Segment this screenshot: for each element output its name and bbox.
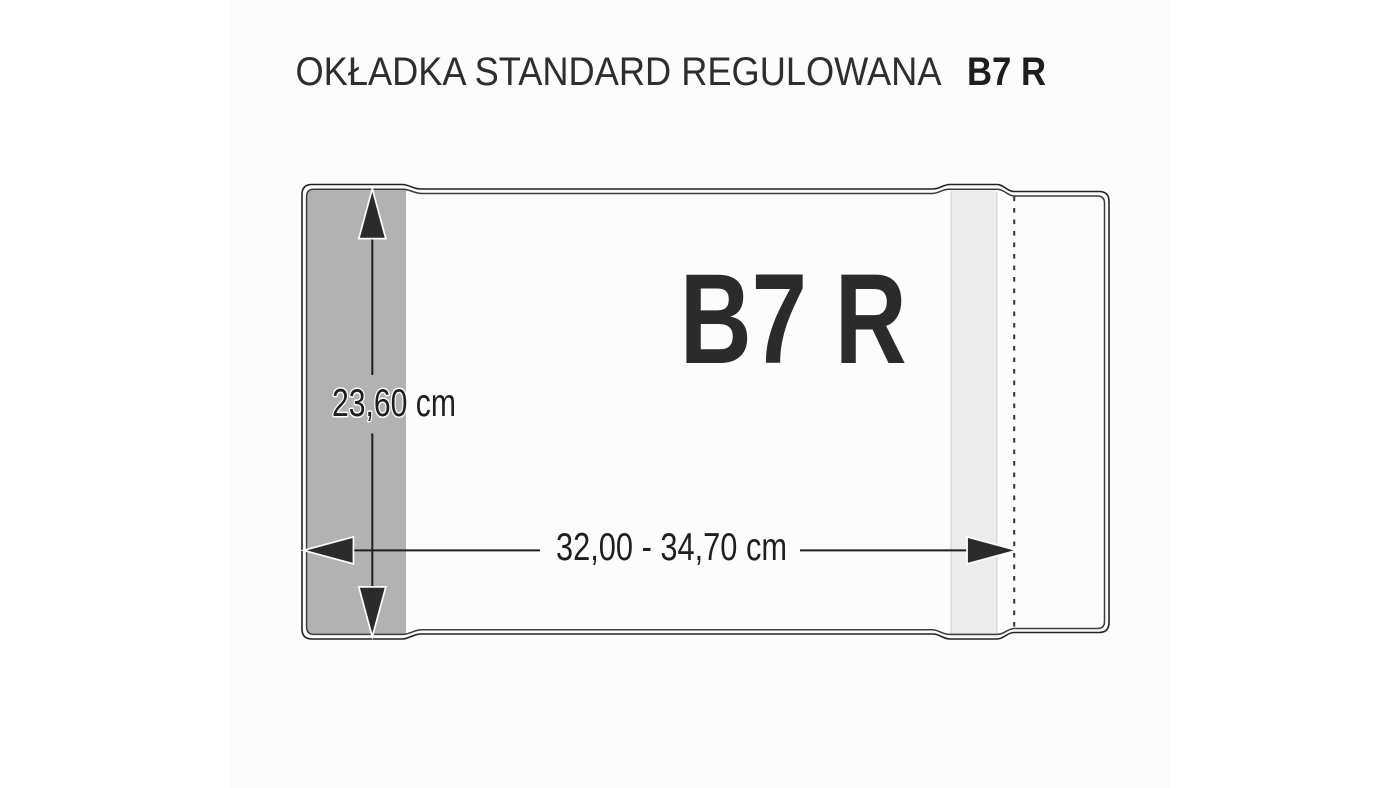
svg-text:B7 R: B7 R — [680, 248, 907, 391]
svg-text:B7 R: B7 R — [967, 50, 1046, 94]
svg-text:23,60 cm: 23,60 cm — [332, 382, 456, 425]
svg-text:32,00 - 34,70 cm: 32,00 - 34,70 cm — [556, 526, 787, 569]
svg-text:OKŁADKA STANDARD REGULOWANA: OKŁADKA STANDARD REGULOWANA — [296, 50, 942, 94]
